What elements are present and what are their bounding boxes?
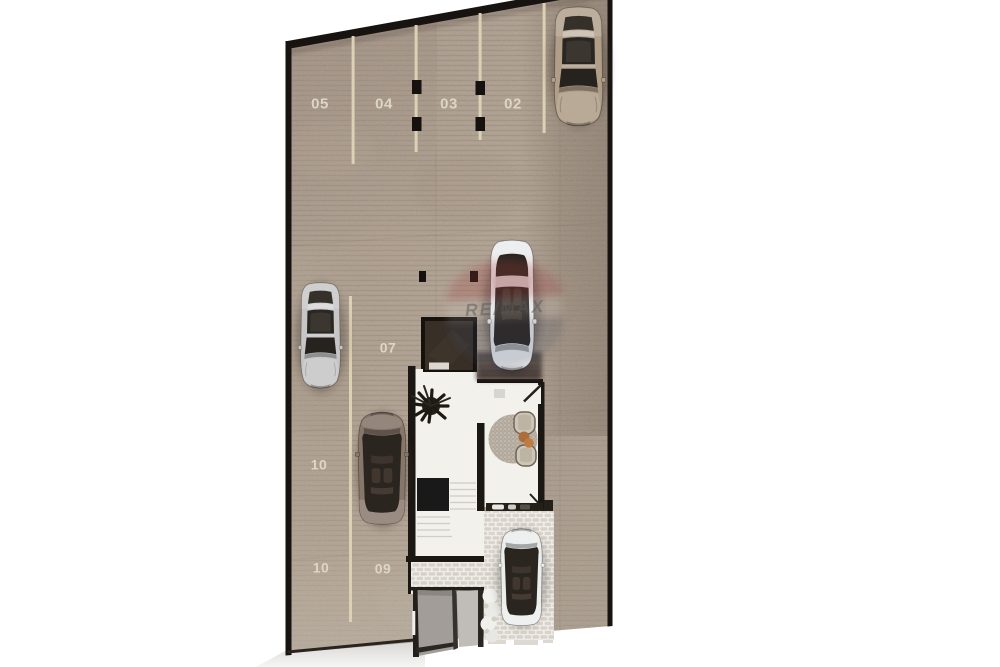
svg-text:03: 03 [440,96,458,113]
svg-text:04: 04 [375,96,393,113]
svg-text:02: 02 [504,96,522,113]
svg-text:09: 09 [375,561,392,577]
svg-text:10: 10 [313,560,330,576]
svg-text:05: 05 [311,96,329,113]
svg-text:10: 10 [311,457,328,473]
svg-text:RE/MAX: RE/MAX [465,296,546,320]
svg-text:07: 07 [380,340,397,356]
